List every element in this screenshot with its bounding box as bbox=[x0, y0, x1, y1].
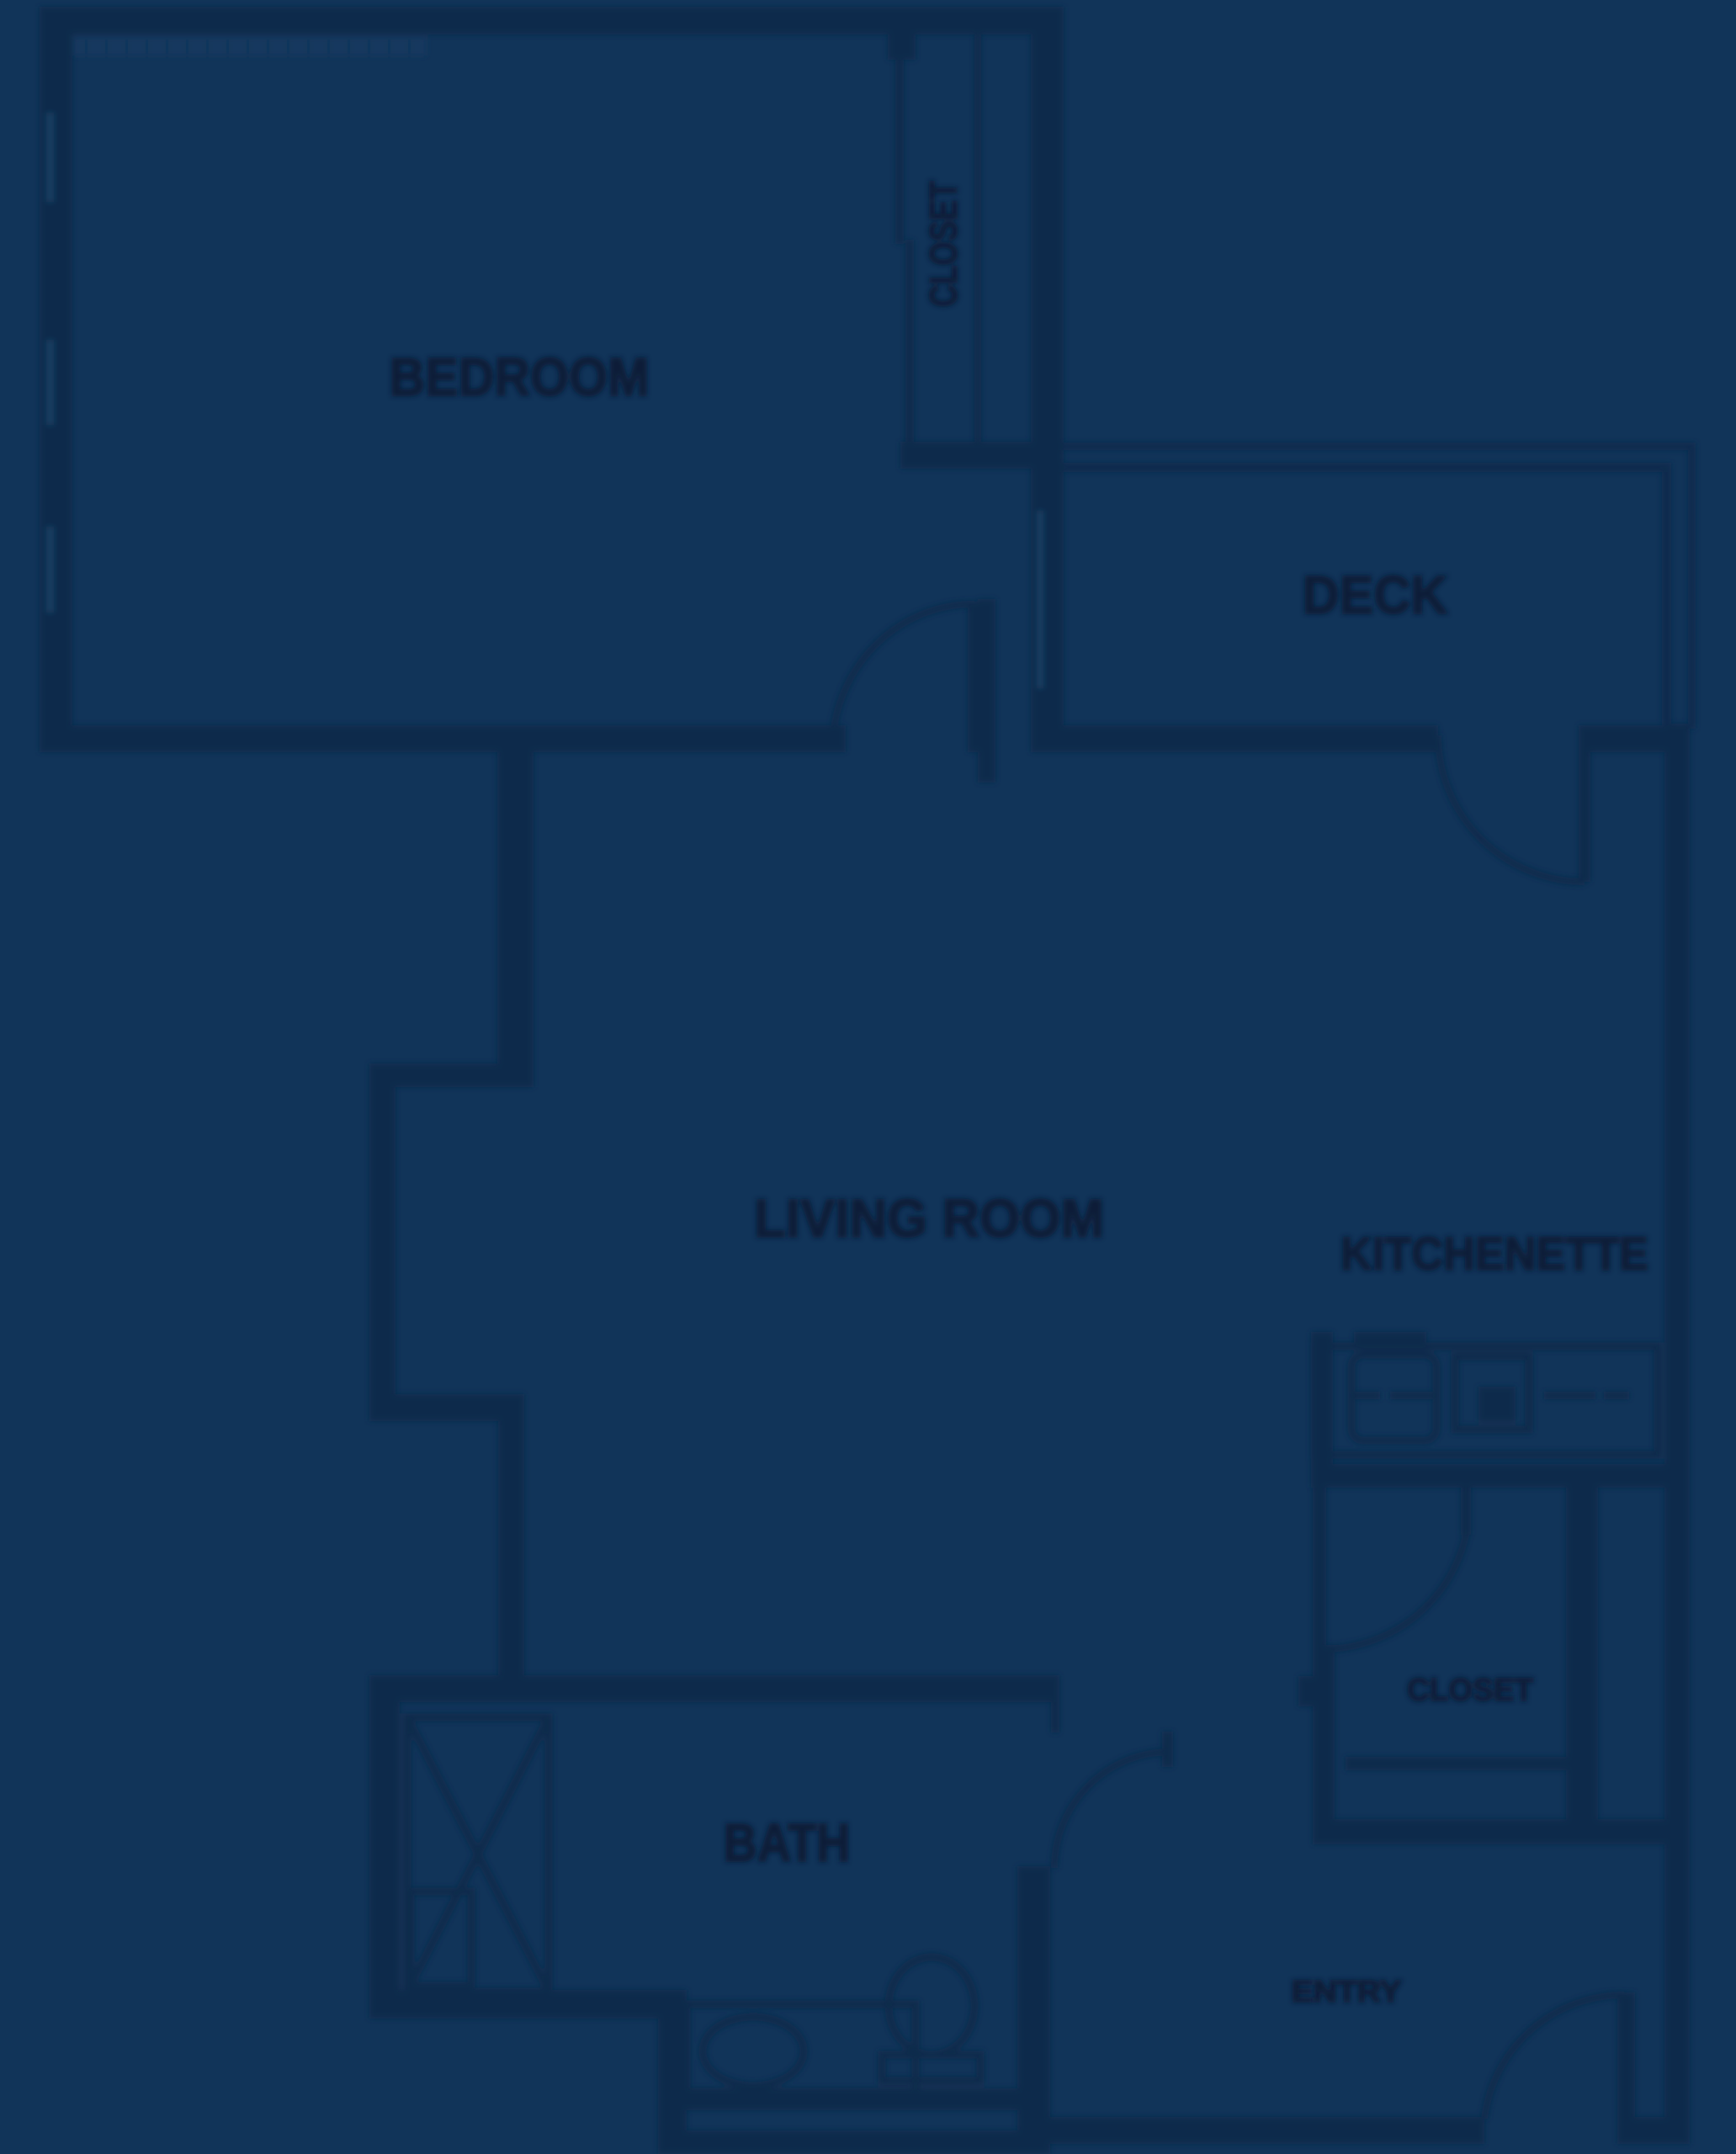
svg-text:DECK: DECK bbox=[1303, 565, 1448, 625]
svg-text:BEDROOM: BEDROOM bbox=[390, 347, 650, 407]
svg-text:ENTRY: ENTRY bbox=[1292, 1974, 1402, 2008]
svg-text:CLOSET: CLOSET bbox=[921, 181, 965, 307]
svg-text:LIVING ROOM: LIVING ROOM bbox=[754, 1188, 1104, 1249]
svg-text:BATH: BATH bbox=[724, 1812, 851, 1873]
svg-text:CLOSET: CLOSET bbox=[1407, 1673, 1533, 1708]
svg-text:KITCHENETTE: KITCHENETTE bbox=[1340, 1227, 1648, 1280]
